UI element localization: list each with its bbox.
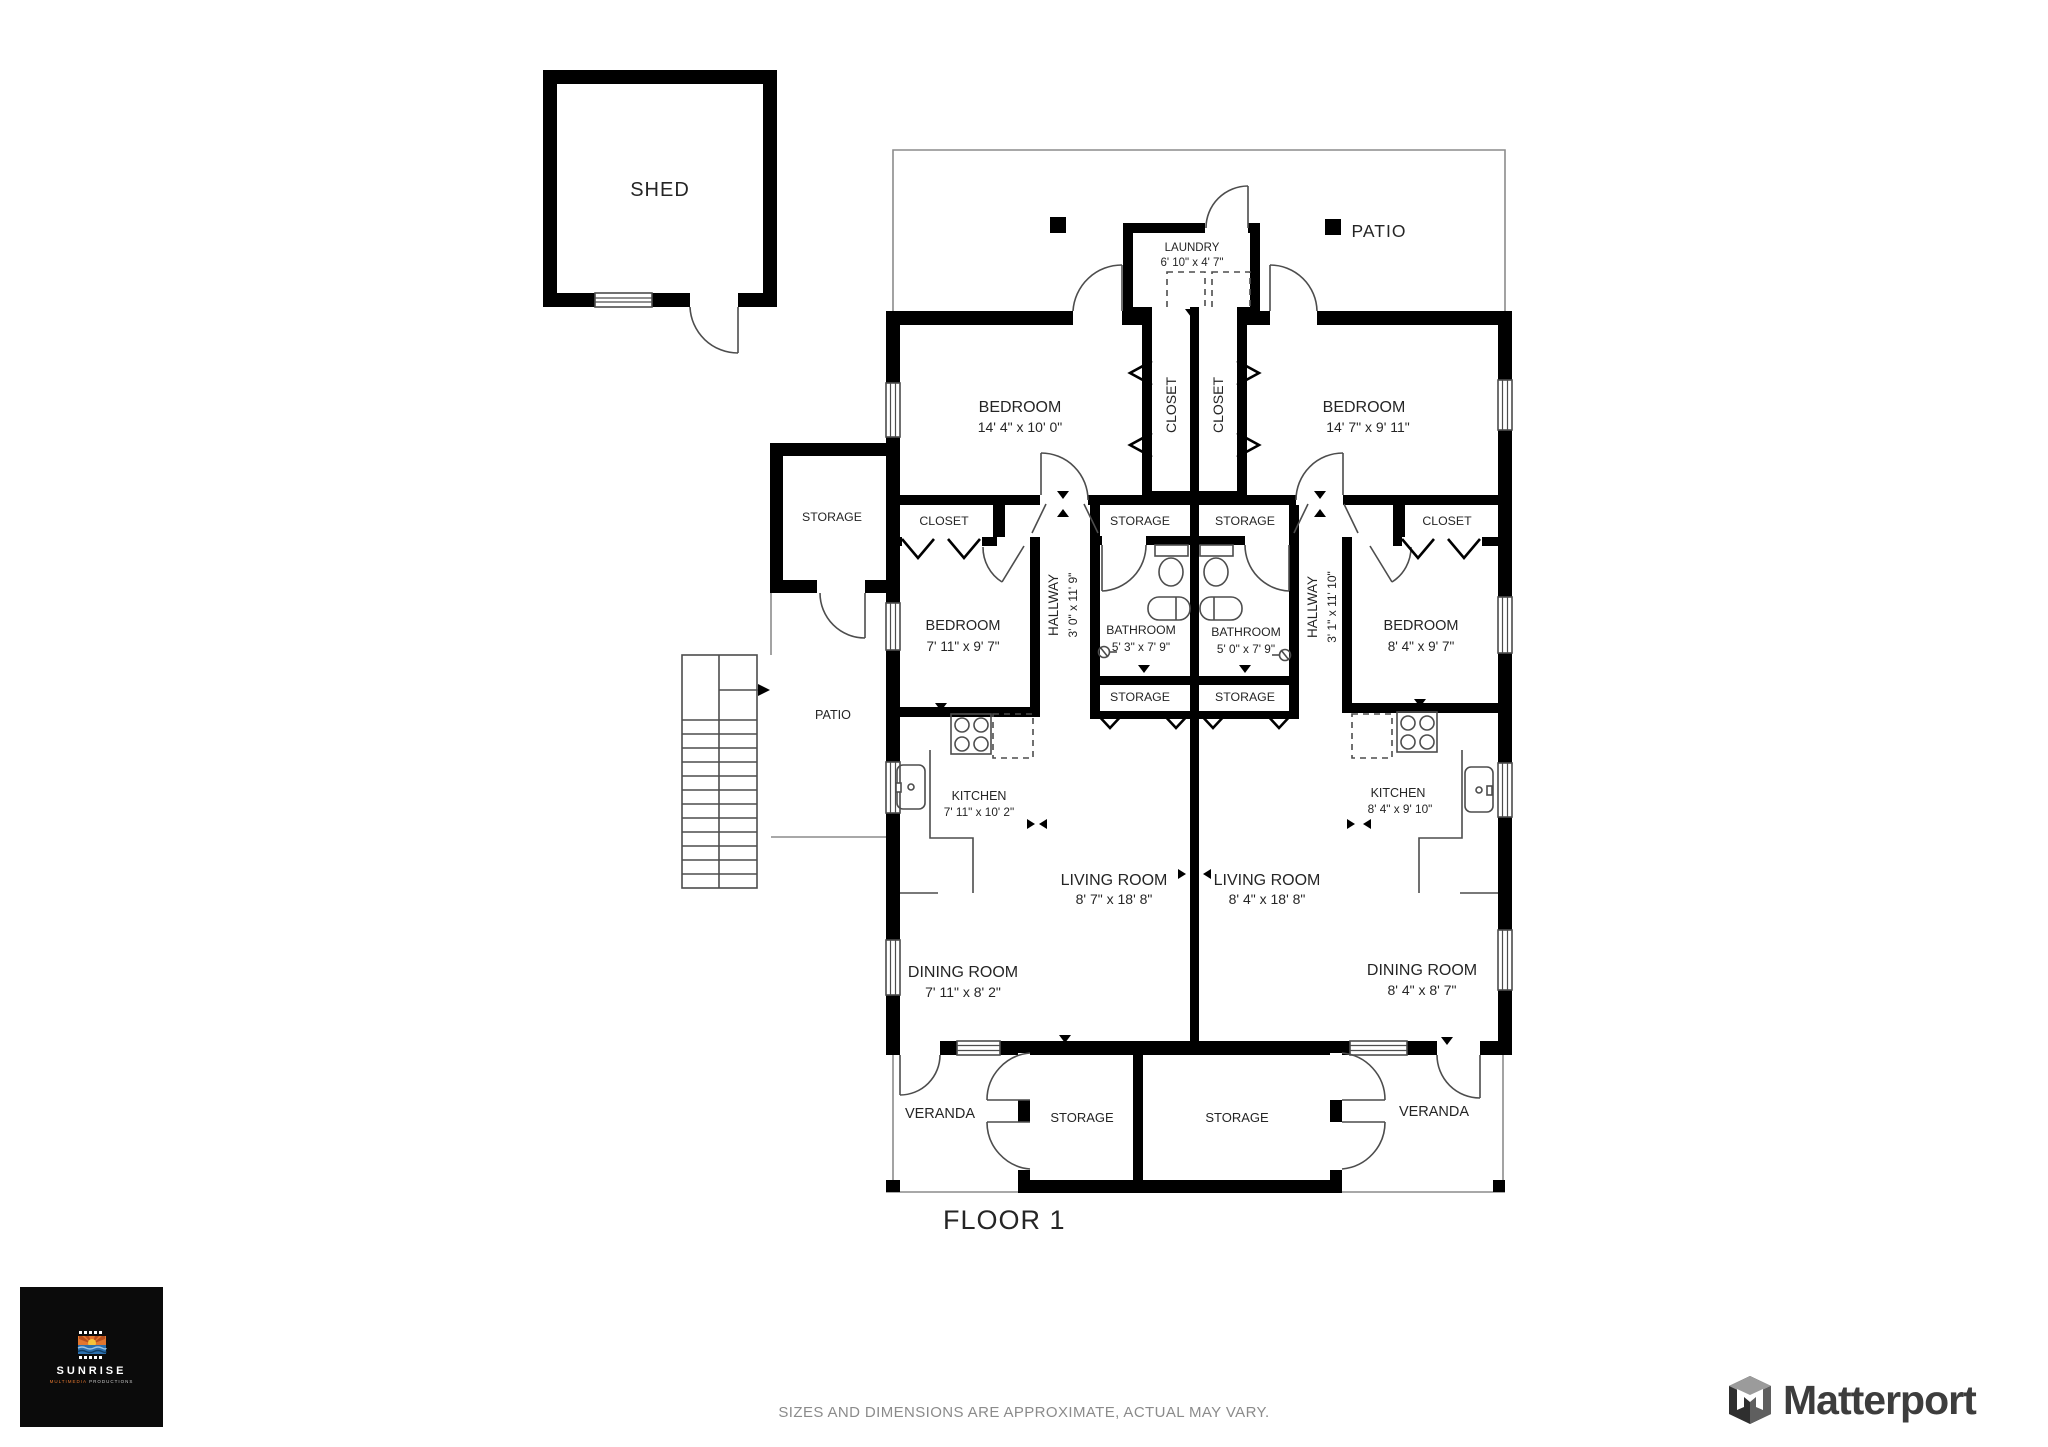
bedroom1-left-dims: 14' 4" x 10' 0" <box>978 419 1063 435</box>
kitchen-right-label: KITCHEN <box>1371 786 1426 800</box>
living-left-label: LIVING ROOM <box>1061 872 1168 889</box>
hallway-right-double-door <box>1294 504 1358 533</box>
window <box>1498 597 1512 653</box>
window <box>1498 380 1512 430</box>
annex-storage <box>770 443 900 638</box>
window <box>886 603 900 650</box>
bedroom2-right-label: BEDROOM <box>1384 618 1459 634</box>
sunrise-subtitle: MULTIMEDIA PRODUCTIONS <box>50 1379 134 1384</box>
bedroom1-right-dims: 14' 7" x 9' 11" <box>1326 419 1410 435</box>
top-patio-label: PATIO <box>1352 221 1407 241</box>
floor-plan-canvas: SHED PATIO LAUNDRY 6' 10" x 4' 7" BEDROO… <box>0 0 2048 1447</box>
bedroom2-left-dims: 7' 11" x 9' 7" <box>926 639 999 654</box>
bathroom-right-label: BATHROOM <box>1211 625 1281 639</box>
bathroom-left-label: BATHROOM <box>1106 623 1176 637</box>
shed-label: SHED <box>630 179 690 201</box>
bathtub <box>1148 597 1190 620</box>
kitchen-left-dims: 7' 11" x 10' 2" <box>944 805 1014 819</box>
storage-door <box>1342 1122 1385 1169</box>
kitchen-right-dims: 8' 4" x 9' 10" <box>1368 802 1433 816</box>
laundry-dims: 6' 10" x 4' 7" <box>1160 257 1223 269</box>
storage-upper-left-label: STORAGE <box>1110 514 1170 528</box>
entry-door-left <box>1073 265 1122 311</box>
counter-edge <box>1419 750 1462 893</box>
entry-door-right <box>1270 265 1317 311</box>
veranda-right-door <box>1437 1055 1480 1098</box>
living-right-label: LIVING ROOM <box>1214 872 1321 889</box>
sunrise-title: SUNRISE <box>57 1365 127 1377</box>
storage-lower-right-label: STORAGE <box>1215 690 1275 704</box>
bathroom-left-dims: 5' 3" x 7' 9" <box>1112 640 1170 654</box>
dining-right-label: DINING ROOM <box>1367 962 1477 979</box>
bedroom2-right-dims: 8' 4" x 9' 7" <box>1388 639 1455 654</box>
counter-appliance <box>1352 714 1392 758</box>
storage-lower-left-label: STORAGE <box>1110 690 1170 704</box>
patio-post-left <box>1050 217 1066 233</box>
window <box>1498 763 1512 817</box>
veranda-right-label: VERANDA <box>1399 1104 1469 1120</box>
closet-strip-right-label: CLOSET <box>1210 377 1226 433</box>
annex-storage-label: STORAGE <box>802 510 862 524</box>
hallway-left-double-door <box>1032 504 1098 533</box>
laundry-label: LAUNDRY <box>1165 242 1220 254</box>
sunrise-filmstrip-icon <box>77 1330 107 1360</box>
bedroom2-right-door <box>1370 546 1411 582</box>
kitchen-sink <box>1465 767 1493 812</box>
dining-left-dims: 7' 11" x 8' 2" <box>925 984 1001 1000</box>
bedroom1-left-label: BEDROOM <box>979 399 1062 416</box>
closet-left-label: CLOSET <box>919 514 969 528</box>
stove-icon <box>951 714 991 754</box>
hallway-right-dims: 3' 1" x 11' 10" <box>1325 571 1339 643</box>
annex-patio-label: PATIO <box>815 708 851 722</box>
floor-plan-page: SHED PATIO LAUNDRY 6' 10" x 4' 7" BEDROO… <box>0 0 2048 1447</box>
storage-bottom-right-label: STORAGE <box>1205 1110 1269 1125</box>
bedroom2-left-label: BEDROOM <box>926 618 1001 634</box>
bathtub <box>1200 597 1242 620</box>
hallway-right-label: HALLWAY <box>1305 576 1320 638</box>
staircase <box>682 655 770 888</box>
window <box>1350 1041 1407 1055</box>
shed <box>543 70 777 353</box>
toilet <box>1155 545 1188 586</box>
dining-right-dims: 8' 4" x 8' 7" <box>1388 982 1457 998</box>
hallway-left-dims: 3' 0" x 11' 9" <box>1066 573 1080 638</box>
window <box>957 1041 1000 1055</box>
dining-left-label: DINING ROOM <box>908 964 1018 981</box>
counter-edge <box>930 750 973 893</box>
kitchen-left-label: KITCHEN <box>952 789 1007 803</box>
veranda-left-label: VERANDA <box>905 1106 975 1122</box>
storage-upper-right-label: STORAGE <box>1215 514 1275 528</box>
living-right-dims: 8' 4" x 18' 8" <box>1229 891 1306 907</box>
counter-appliance <box>993 714 1033 758</box>
closet-right-label: CLOSET <box>1422 514 1472 528</box>
window <box>886 940 900 995</box>
window <box>1498 930 1512 990</box>
bedroom2-left-door <box>983 546 1024 582</box>
storage-door <box>1342 1053 1385 1100</box>
bedroom1-right-label: BEDROOM <box>1323 399 1406 416</box>
stove-icon <box>1397 712 1437 752</box>
closet-strip-left-label: CLOSET <box>1163 377 1179 433</box>
bathroom-left-door <box>1102 545 1146 591</box>
living-left-dims: 8' 7" x 18' 8" <box>1076 891 1153 907</box>
stairs-direction-arrow-icon <box>758 684 770 696</box>
toilet <box>1200 545 1233 586</box>
bathroom-right-dims: 5' 0" x 7' 9" <box>1217 642 1275 656</box>
hallway-left-label: HALLWAY <box>1046 574 1061 636</box>
storage-bottom-left-label: STORAGE <box>1050 1110 1114 1125</box>
patio-post-right <box>1325 219 1341 235</box>
disclaimer-text: SIZES AND DIMENSIONS ARE APPROXIMATE, AC… <box>0 1404 2048 1421</box>
bathroom-right-door <box>1245 545 1289 591</box>
window <box>886 383 900 437</box>
veranda-left-door <box>900 1055 940 1095</box>
floor-label: FLOOR 1 <box>943 1205 1066 1235</box>
